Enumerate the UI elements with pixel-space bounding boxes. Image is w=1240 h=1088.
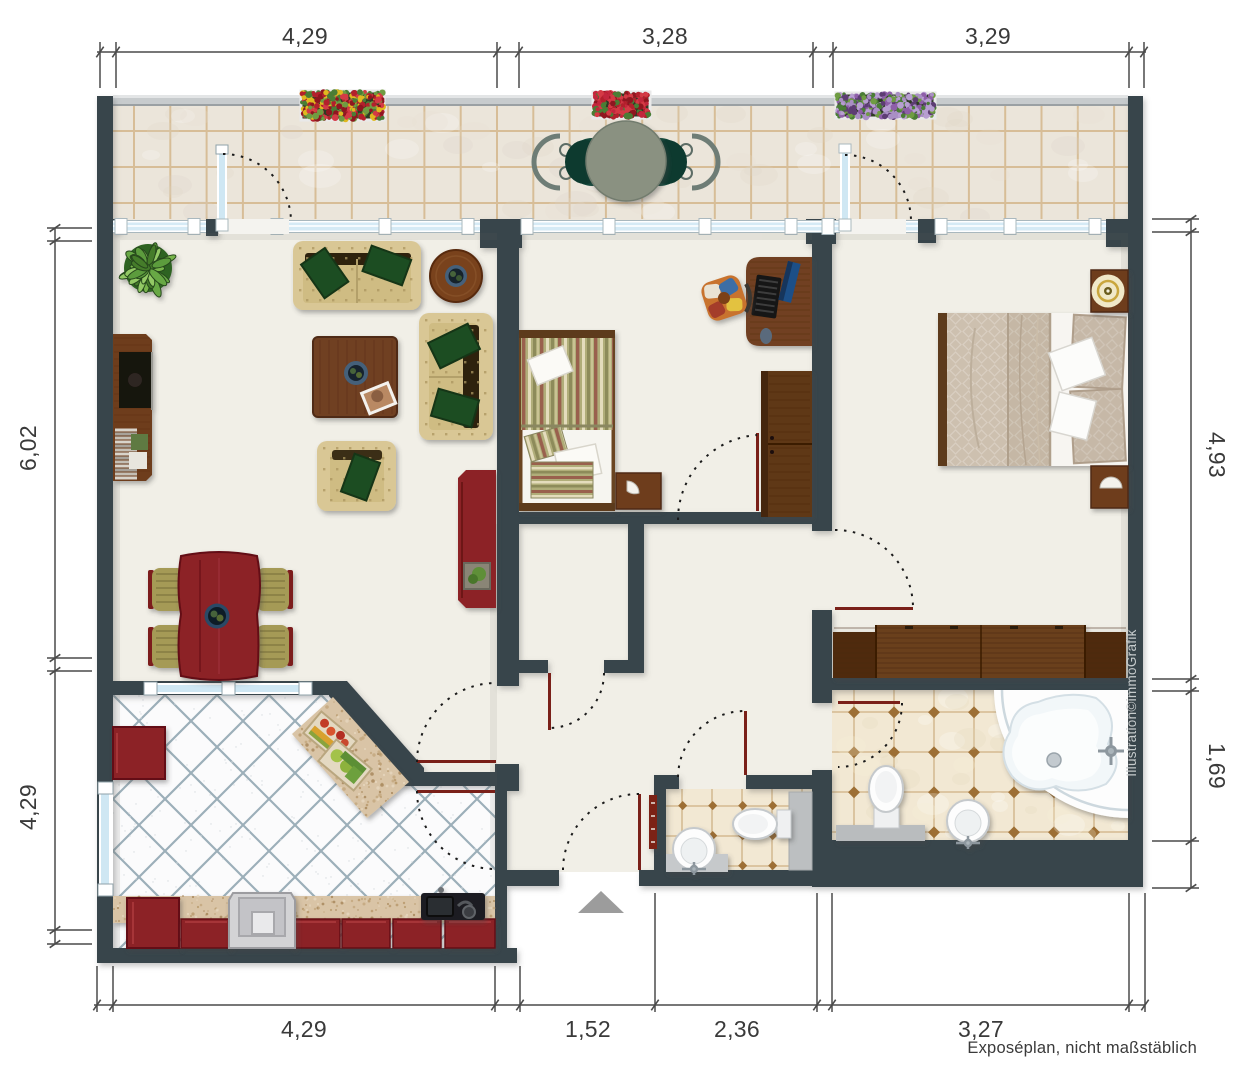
svg-text:4,29: 4,29 <box>281 1016 327 1042</box>
svg-text:1,52: 1,52 <box>565 1016 611 1042</box>
svg-text:Exposéplan, nicht maßstäblich: Exposéplan, nicht maßstäblich <box>967 1039 1197 1057</box>
svg-text:4,93: 4,93 <box>1204 432 1230 478</box>
svg-text:4,29: 4,29 <box>15 784 41 830</box>
svg-text:4,29: 4,29 <box>282 23 328 49</box>
svg-text:3,28: 3,28 <box>642 23 688 49</box>
svg-text:2,36: 2,36 <box>714 1016 760 1042</box>
svg-text:6,02: 6,02 <box>15 425 41 471</box>
svg-text:1,69: 1,69 <box>1204 743 1230 789</box>
svg-text:Illustration©immoGrafik: Illustration©immoGrafik <box>1124 629 1139 776</box>
svg-text:3,29: 3,29 <box>965 23 1011 49</box>
